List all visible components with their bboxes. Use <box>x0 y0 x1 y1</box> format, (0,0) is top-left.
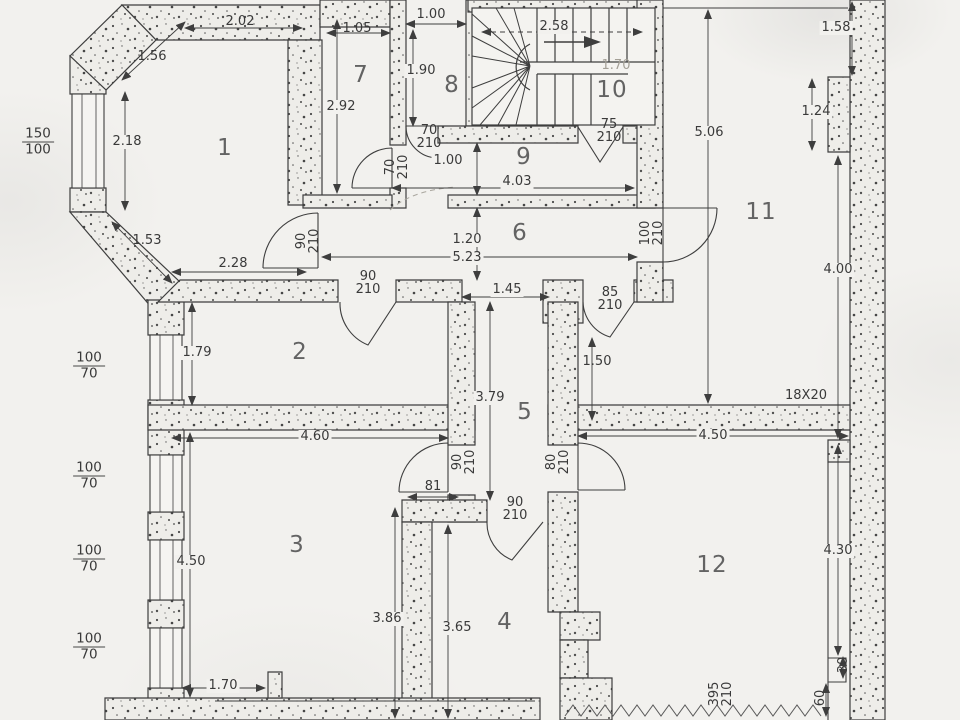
wall-segment <box>560 612 600 640</box>
wall-segment <box>548 405 850 430</box>
wall-segment <box>70 212 180 308</box>
door-swing <box>663 208 717 262</box>
window-100x70 <box>150 335 182 400</box>
door-swing <box>406 126 438 158</box>
wall-pilaster <box>828 77 850 152</box>
wall-segment <box>148 600 184 628</box>
floor-plan-page: 1234567891011122.021.562.181.532.281.052… <box>0 0 960 720</box>
door-swing <box>583 302 634 337</box>
wall-segment <box>148 405 475 430</box>
window-150x100 <box>72 94 104 188</box>
wall-segment <box>560 640 588 678</box>
window-100x70 <box>150 540 182 600</box>
wall-segment <box>268 672 282 698</box>
staircase <box>472 8 655 125</box>
door-swing <box>578 127 623 162</box>
wall-segment <box>148 512 184 540</box>
wall-segment <box>320 0 390 27</box>
door-swing <box>352 148 392 188</box>
wall-segment <box>560 678 612 720</box>
wall-segment <box>390 0 406 145</box>
door-swing <box>340 302 396 345</box>
wall-segment <box>288 40 322 205</box>
wall-segment <box>548 492 578 612</box>
door-swing <box>263 213 318 268</box>
wall-segment <box>158 280 338 302</box>
window-100x70 <box>150 455 182 512</box>
door-swing <box>487 522 543 560</box>
wall-segment <box>850 0 885 720</box>
wall-segment <box>402 500 487 522</box>
door-swing <box>399 443 448 492</box>
wall-segment <box>396 280 462 302</box>
windows-layer <box>72 94 182 688</box>
window-100x70 <box>150 628 182 688</box>
wall-segment <box>438 126 578 143</box>
wall-segment <box>70 188 106 212</box>
wall-segment <box>303 195 392 208</box>
wall-segment <box>402 522 432 720</box>
door-swing <box>578 443 625 490</box>
wall-pillar-18x20 <box>828 440 850 462</box>
wall-segment <box>448 195 655 208</box>
floor-plan-drawing <box>0 0 960 720</box>
wall-segment <box>637 262 663 302</box>
wall-segment <box>148 300 184 335</box>
wall-segment <box>448 302 475 445</box>
wall-segment <box>548 302 578 445</box>
